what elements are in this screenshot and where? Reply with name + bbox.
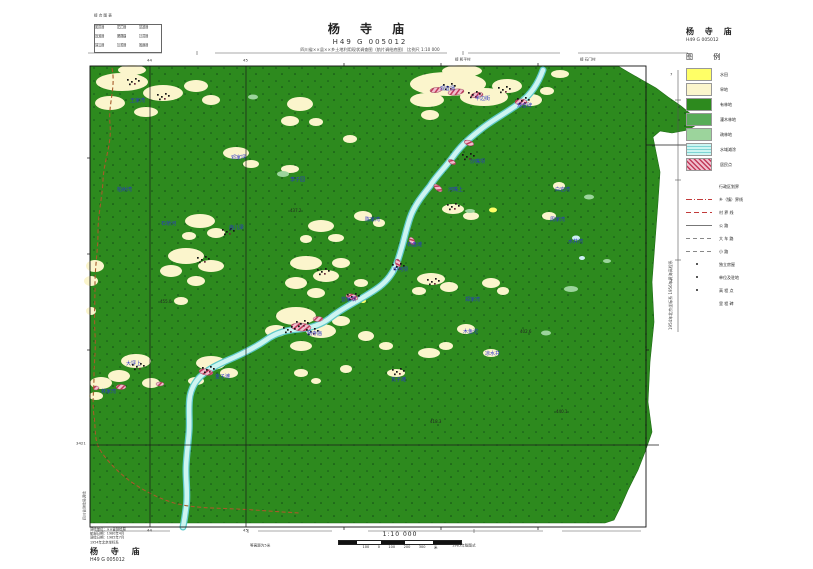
place-label: 沙嘴坝 [470,158,485,165]
agency-note-vertical: 四川省测绘局调绘 [82,491,87,520]
place-label: 林家湾 [101,388,116,395]
place-label: 曾家坝 [341,296,356,303]
place-label: 凉水井 [485,350,500,357]
place-label: 中河坝 [393,266,408,273]
scale-unit: 米 [434,545,438,550]
forest-landmass [90,66,698,523]
grid-number: 44 [147,58,152,62]
place-label: 瓦子滩 [391,376,406,383]
elevation-label: 418.3 [430,419,442,424]
place-label: 金子滩 [215,373,230,380]
place-label: 陈家湾 [365,216,380,223]
place-label: 河嘴上 [448,186,463,193]
legend-symbol-row: 行政区划界 [686,180,810,193]
legend-row-dryland: 旱地 [686,82,810,97]
grid-number: 44 [147,528,152,532]
edition-note: 1985年版图式 [452,543,476,548]
legend-row-paddy: 水田 [686,67,810,82]
grid-number: 45 [243,58,248,62]
index-cell: 沙坝村 [117,43,126,47]
index-grid: 和平村 石门村 高桥村 龙塘村 杨寺庙 小河村 青山村 沙坝村 柏林村 [94,24,162,53]
elevation-point-symbol [686,287,712,294]
legend-row-shrub: 灌木林地 [686,112,810,127]
legend-symbol-row: 高 程 点 [686,284,810,297]
legend-symbol-row: 独立房屋 [686,258,810,271]
legend-panel: 杨 寺 庙 H49 G 005012 图 例 水田 旱地 有林地 灌木林地 疏林… [686,26,810,310]
legend-sheet-number: H49 G 005012 [686,37,779,42]
scale-ratio: 1:10 000 [300,531,500,538]
place-label: 邓家坪 [231,154,246,161]
elevation-label: 440.1 [556,409,568,414]
index-cell: 小河村 [139,34,148,38]
water-swatch [686,143,712,156]
index-cell: 柏林村 [139,43,148,47]
township-boundary-symbol [686,196,712,203]
cart-road-symbol [686,235,712,242]
legend-symbol-row: 小 路 [686,245,810,258]
production-block: 调绘单位：××省测绘局 航摄日期：1980年4月 调绘日期：1985年7月 19… [90,527,210,564]
unit-seat-symbol [686,274,712,281]
contour-note: 等高距为5米 [250,543,270,548]
village-boundary-symbol [686,209,712,216]
legend-row-sparse: 疏林地 [686,127,810,142]
footer-title: 杨 寺 庙 [90,546,210,557]
place-label: 庙儿梁 [229,224,244,231]
production-note: 1954年北京坐标系 [90,540,140,542]
elevation-label: 402.6 [520,329,532,334]
forest-swatch [686,98,712,111]
index-cell: 和平村 [95,25,104,29]
ruler-tick-label: 3 [670,278,672,282]
place-label: 周家湾 [550,216,565,223]
ruler-tick-label: 7 [670,72,672,76]
house-symbol [686,261,712,268]
footer-sheet-number: H49 G 005012 [90,557,186,563]
legend-symbol-row: 单位及驻地 [686,271,810,284]
index-cell: 青山村 [95,43,104,47]
scale-marks: 100 0 100 200 300 米 [363,545,438,550]
title-block: 杨 寺 庙 H49 G 005012 四川省××县××乡土地利用现状调查图（航片… [230,20,510,58]
index-caption: 接 合 图 表 [94,13,124,18]
legend-symbol-row: 乡（镇）界线 [686,193,810,206]
map-sheet: 王家湾 柏树湾 邓家坪 李子园 石桥河 庙儿梁 陈家湾 观音场 半边街 观音碑 … [0,0,813,569]
grid-number: 3421 [76,441,86,445]
production-note: 航摄日期：1980年4月 [90,531,140,533]
place-label: 柏树湾 [117,186,132,193]
place-label: 郑家湾 [465,296,480,303]
none-symbol [686,183,712,190]
index-cell: 高桥村 [139,25,148,29]
adjoining-sheets-index: 接 合 图 表 和平村 石门村 高桥村 龙塘村 杨寺庙 小河村 青山村 沙坝村 … [94,13,160,53]
legend-symbol-row: 里 程 碑 [686,297,810,310]
paddy-swatch [686,68,712,81]
road-symbol [686,222,712,229]
place-label: 杨寺庙 [307,330,322,337]
legend-row-forest: 有林地 [686,97,810,112]
production-note: 调绘单位：××省测绘局 [90,527,140,529]
legend-header: 图 例 [686,52,810,62]
milestone-symbol [686,300,712,307]
place-label: 大坪上 [126,360,141,367]
place-label: 王家湾 [130,97,145,104]
dryland-swatch [686,83,712,96]
elevation-label: 437.2 [290,208,302,213]
shrub-swatch [686,113,712,126]
place-label: 白岩湾 [555,186,570,193]
settlement-swatch [686,158,712,171]
legend-symbol-row: 大 车 路 [686,232,810,245]
place-label: 半边街 [475,95,490,102]
place-label: 观音场 [440,85,455,92]
join-note-top: 接 和平村 [455,57,471,62]
place-label: 观音碑 [517,102,532,109]
production-note: 调绘日期：1985年7月 [90,535,140,537]
map-sheet-number: H49 G 005012 [230,38,510,46]
place-label: 水井湾 [568,238,583,245]
index-cell: 龙塘村 [95,34,104,38]
place-label: 石桥河 [161,220,176,227]
grid-number: 45 [243,528,248,532]
legend-row-water: 水域滩涂 [686,142,810,157]
index-cell: 石门村 [117,25,126,29]
place-label: 石盘滩 [407,241,422,248]
join-note-top-2: 接 石门村 [580,57,596,62]
elevation-label: 455.0 [160,299,172,304]
legend-symbol-row: 村 界 线 [686,206,810,219]
place-label: 李子园 [290,176,305,183]
map-title: 杨 寺 庙 [230,20,510,37]
sparse-forest-swatch [686,128,712,141]
place-label: 木鱼沱 [463,328,478,335]
index-cell-current: 杨寺庙 [117,34,126,38]
trail-symbol [686,248,712,255]
legend-symbol-row: 公 路 [686,219,810,232]
map-subtitle: 四川省××县××乡土地利用现状调查图（航片调绘底图） 比例尺 1:10 000 [232,47,509,53]
legend-row-settlement: 居民点 [686,157,810,172]
datum-note-vertical: 1954年北京坐标系 1956年黄海高程系 [668,260,674,330]
legend-title: 杨 寺 庙 [686,26,810,37]
